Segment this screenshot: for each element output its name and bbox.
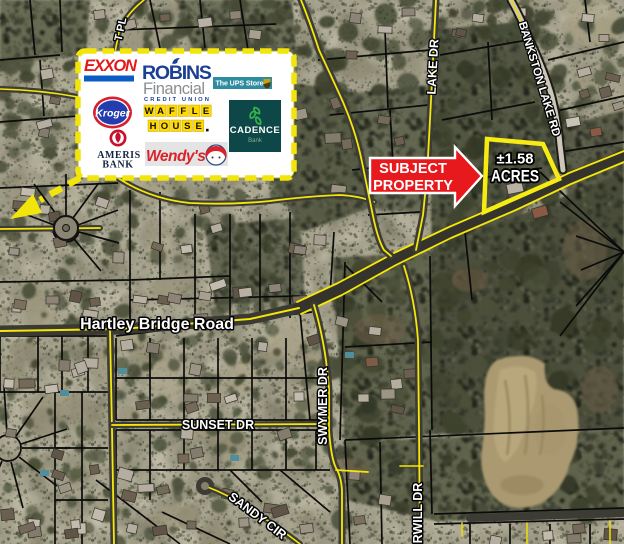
svg-text:F: F [180,106,186,117]
svg-text:H: H [150,121,157,132]
svg-text:SWYMER DR: SWYMER DR [316,367,330,445]
svg-text:EXXON: EXXON [84,57,138,75]
svg-text:CREDIT UNION: CREDIT UNION [144,97,211,103]
svg-text:S: S [184,121,190,132]
svg-text:O: O [161,121,168,132]
svg-text:Kroger: Kroger [95,108,130,120]
svg-text:CADENCE: CADENCE [230,125,280,136]
svg-text:Bank: Bank [248,138,263,144]
svg-text:PROPERTY: PROPERTY [373,178,453,194]
svg-text:ACRES: ACRES [491,168,539,186]
svg-text:E: E [203,106,209,117]
svg-text:Financial: Financial [143,80,205,98]
svg-text:LAKE DR: LAKE DR [425,39,442,95]
svg-text:BANK: BANK [102,160,133,171]
svg-text:W: W [145,106,154,117]
svg-text:The UPS Store: The UPS Store [216,80,264,88]
svg-text:SUBJECT: SUBJECT [379,161,447,177]
svg-text:SUNSET DR: SUNSET DR [182,418,254,432]
svg-text:L: L [192,106,198,117]
svg-text:F: F [169,106,175,117]
svg-text:Wendy's: Wendy's [146,148,206,165]
svg-text:E: E [196,121,202,132]
svg-text:Hartley Bridge Road: Hartley Bridge Road [80,316,234,333]
svg-text:RWILL DR: RWILL DR [411,483,425,544]
svg-text:A: A [157,106,164,117]
svg-text:U: U [172,121,179,132]
svg-text:±1.58: ±1.58 [497,151,534,168]
